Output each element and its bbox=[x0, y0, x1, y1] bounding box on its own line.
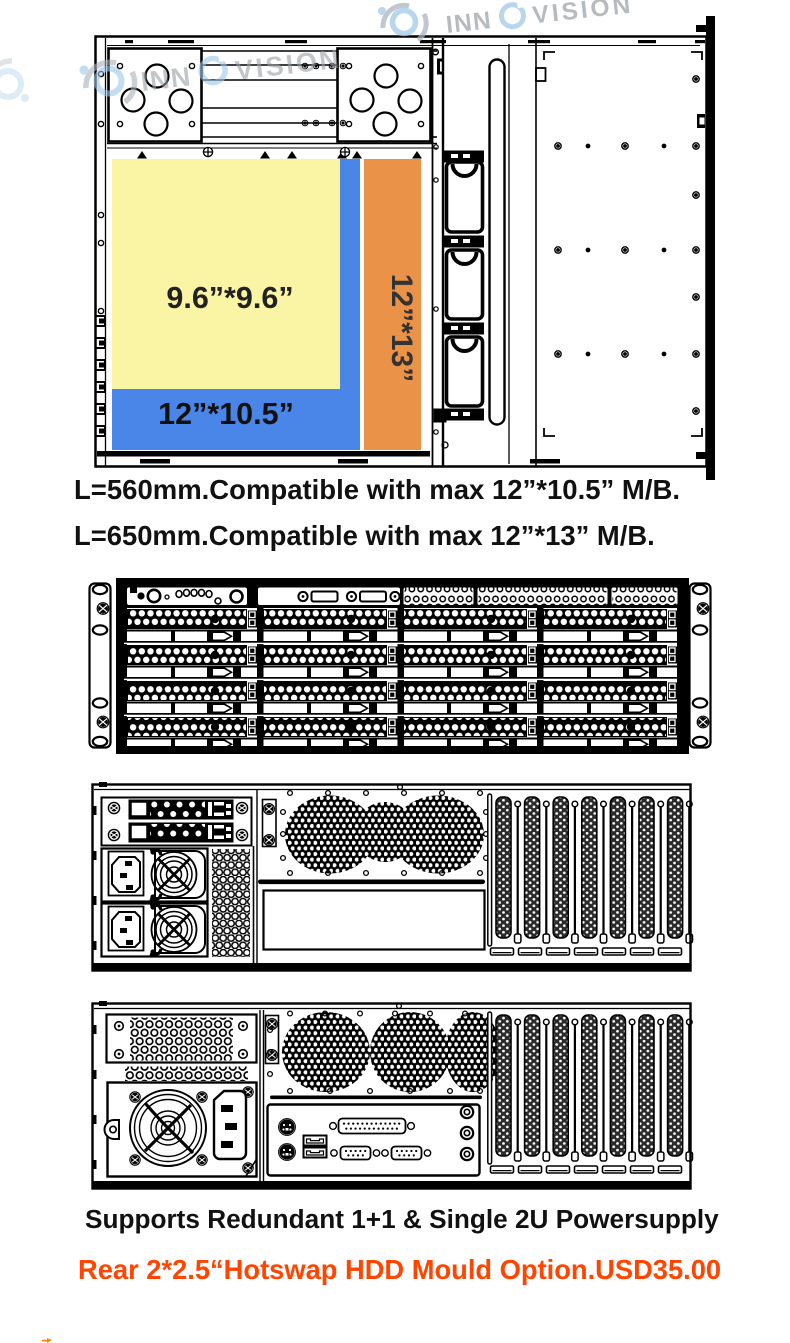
svg-text:INN: INN bbox=[445, 7, 494, 39]
svg-text:12”*13”: 12”*13” bbox=[385, 274, 418, 382]
svg-text:9.6”*9.6”: 9.6”*9.6” bbox=[166, 281, 293, 315]
svg-text:12”*10.5”: 12”*10.5” bbox=[158, 397, 294, 431]
svg-text:VISION: VISION bbox=[531, 0, 634, 29]
svg-text:INN: INN bbox=[139, 61, 193, 97]
